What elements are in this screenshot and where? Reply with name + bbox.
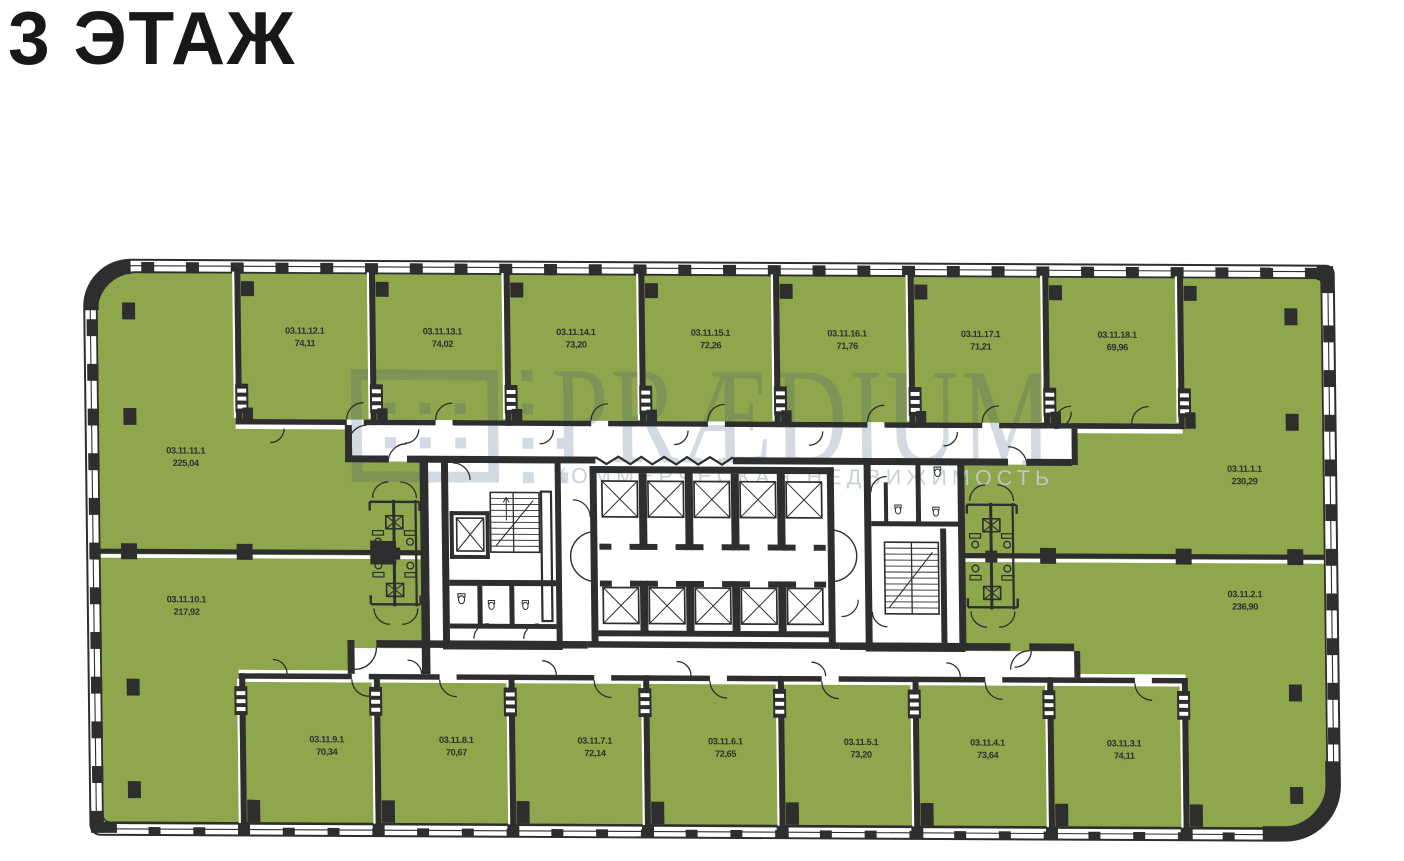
svg-text:71,76: 71,76: [837, 341, 859, 351]
svg-text:03.11.18.1: 03.11.18.1: [1097, 330, 1137, 340]
svg-text:03.11.7.1: 03.11.7.1: [577, 736, 612, 746]
svg-text:230,29: 230,29: [1232, 476, 1258, 486]
svg-text:225,04: 225,04: [173, 458, 200, 468]
svg-text:03.11.17.1: 03.11.17.1: [961, 329, 1001, 339]
svg-text:03.11.15.1: 03.11.15.1: [691, 328, 731, 338]
svg-text:72,26: 72,26: [700, 340, 722, 350]
svg-text:03.11.10.1: 03.11.10.1: [167, 594, 207, 604]
svg-text:03.11.12.1: 03.11.12.1: [285, 326, 325, 336]
svg-text:03.11.14.1: 03.11.14.1: [556, 327, 596, 337]
svg-text:74,11: 74,11: [1114, 751, 1135, 761]
svg-text:70,67: 70,67: [446, 747, 468, 757]
svg-text:03.11.11.1: 03.11.11.1: [166, 445, 205, 455]
svg-text:74,11: 74,11: [295, 338, 316, 348]
svg-text:03.11.13.1: 03.11.13.1: [423, 326, 463, 336]
svg-text:3 ЭТАЖ: 3 ЭТАЖ: [8, 0, 296, 80]
svg-text:03.11.6.1: 03.11.6.1: [708, 736, 743, 746]
svg-text:03.11.9.1: 03.11.9.1: [309, 734, 344, 744]
svg-text:72,14: 72,14: [584, 748, 607, 758]
svg-text:69,96: 69,96: [1107, 342, 1129, 352]
svg-text:03.11.5.1: 03.11.5.1: [844, 737, 879, 747]
svg-text:03.11.8.1: 03.11.8.1: [439, 735, 474, 745]
svg-text:73,64: 73,64: [977, 750, 1000, 760]
svg-text:236,90: 236,90: [1232, 602, 1258, 612]
svg-text:71,21: 71,21: [970, 342, 992, 352]
svg-text:03.11.2.1: 03.11.2.1: [1228, 589, 1263, 599]
svg-text:03.11.4.1: 03.11.4.1: [970, 738, 1005, 748]
svg-text:03.11.1.1: 03.11.1.1: [1227, 464, 1262, 474]
svg-text:70,34: 70,34: [316, 747, 339, 757]
svg-text:217,92: 217,92: [174, 607, 200, 617]
svg-text:73,20: 73,20: [850, 749, 872, 759]
svg-text:74,02: 74,02: [432, 339, 454, 349]
svg-text:03.11.3.1: 03.11.3.1: [1107, 738, 1142, 748]
svg-text:72,65: 72,65: [715, 749, 737, 759]
svg-text:03.11.16.1: 03.11.16.1: [827, 328, 867, 338]
svg-text:73,20: 73,20: [565, 339, 587, 349]
